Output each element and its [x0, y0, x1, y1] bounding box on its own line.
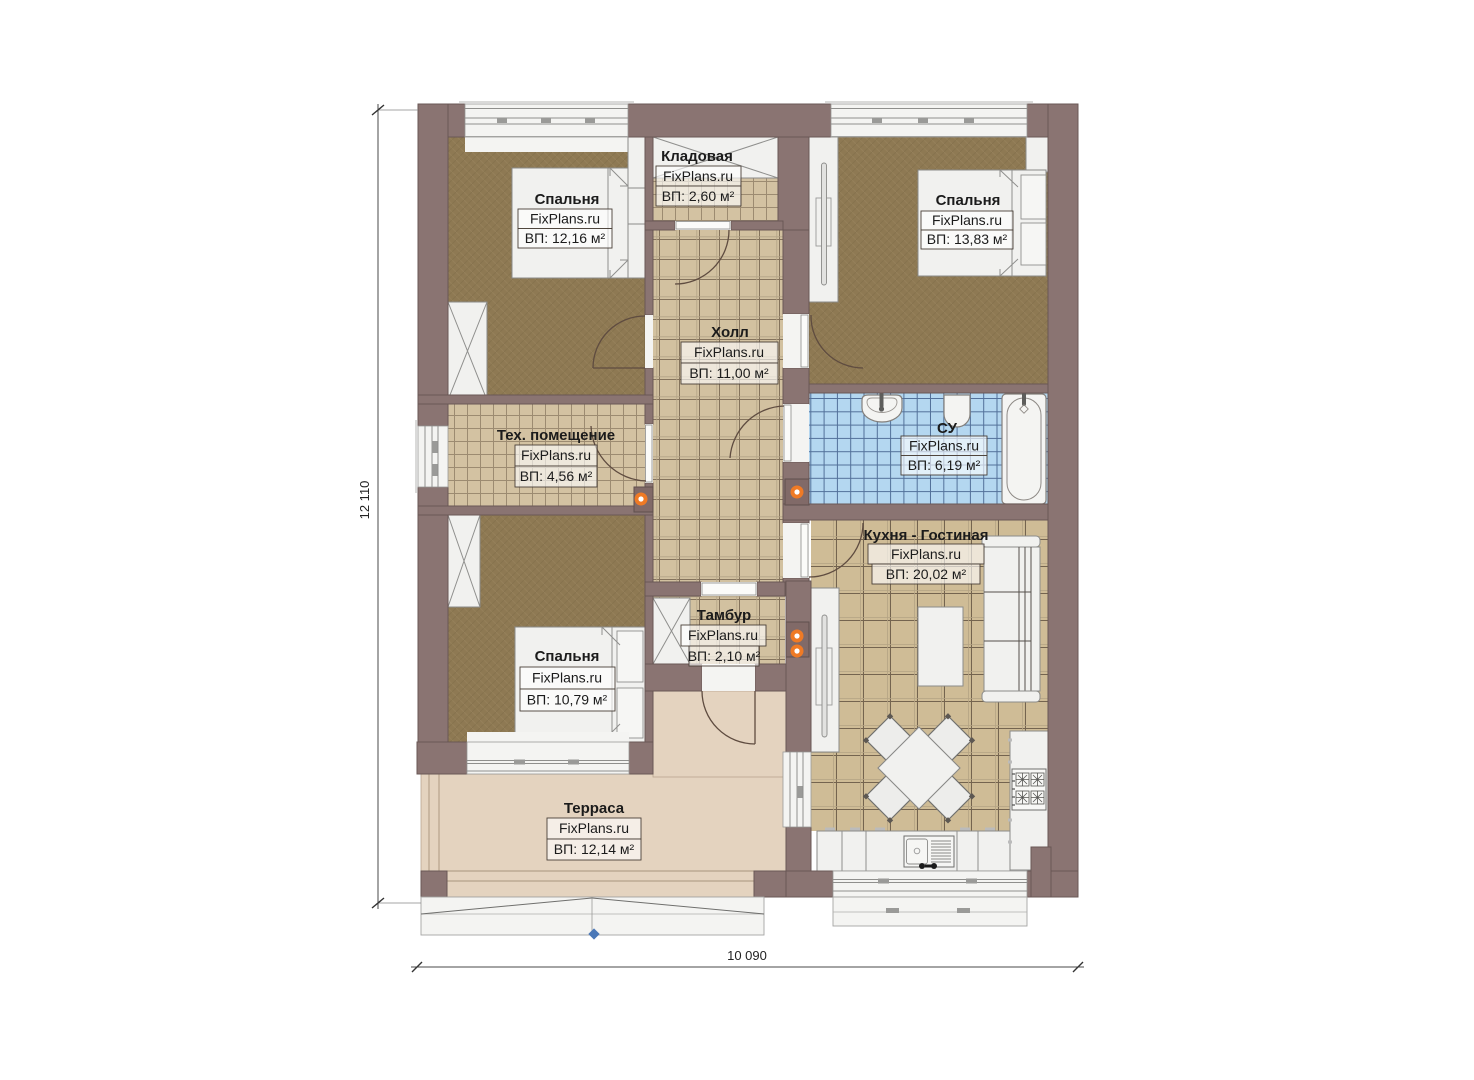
svg-text:FixPlans.ru: FixPlans.ru — [694, 344, 764, 360]
svg-text:12 110: 12 110 — [357, 481, 372, 520]
svg-text:СУ: СУ — [937, 420, 958, 437]
svg-text:Терраса: Терраса — [564, 800, 625, 817]
svg-text:FixPlans.ru: FixPlans.ru — [521, 447, 591, 463]
svg-text:ВП: 11,00 м²: ВП: 11,00 м² — [689, 365, 769, 381]
svg-text:ВП: 2,60 м²: ВП: 2,60 м² — [662, 188, 735, 204]
svg-text:ВП: 13,83 м²: ВП: 13,83 м² — [927, 231, 1008, 247]
svg-text:Спальня: Спальня — [535, 191, 600, 208]
svg-text:FixPlans.ru: FixPlans.ru — [530, 211, 600, 227]
svg-text:ВП: 20,02 м²: ВП: 20,02 м² — [886, 566, 967, 582]
svg-text:ВП: 12,16 м²: ВП: 12,16 м² — [525, 230, 606, 246]
svg-text:FixPlans.ru: FixPlans.ru — [891, 546, 961, 562]
svg-text:Тамбур: Тамбур — [697, 607, 751, 624]
svg-text:FixPlans.ru: FixPlans.ru — [932, 212, 1002, 228]
svg-text:FixPlans.ru: FixPlans.ru — [688, 627, 758, 643]
svg-text:FixPlans.ru: FixPlans.ru — [532, 670, 602, 686]
svg-text:10 090: 10 090 — [727, 948, 767, 963]
svg-text:FixPlans.ru: FixPlans.ru — [559, 820, 629, 836]
svg-text:Кухня - Гостиная: Кухня - Гостиная — [864, 527, 989, 544]
svg-text:FixPlans.ru: FixPlans.ru — [663, 168, 733, 184]
svg-text:Кладовая: Кладовая — [661, 148, 733, 165]
svg-text:ВП: 4,56 м²: ВП: 4,56 м² — [520, 468, 593, 484]
svg-text:ВП: 6,19 м²: ВП: 6,19 м² — [908, 457, 981, 473]
svg-text:Тех. помещение: Тех. помещение — [497, 427, 615, 444]
svg-text:FixPlans.ru: FixPlans.ru — [909, 438, 979, 454]
svg-text:Спальня: Спальня — [936, 192, 1001, 209]
svg-text:ВП: 2,10 м²: ВП: 2,10 м² — [688, 648, 761, 664]
svg-text:ВП: 10,79 м²: ВП: 10,79 м² — [527, 692, 608, 708]
svg-text:ВП: 12,14 м²: ВП: 12,14 м² — [554, 841, 635, 857]
svg-text:Спальня: Спальня — [535, 648, 600, 665]
svg-text:Холл: Холл — [711, 324, 749, 341]
